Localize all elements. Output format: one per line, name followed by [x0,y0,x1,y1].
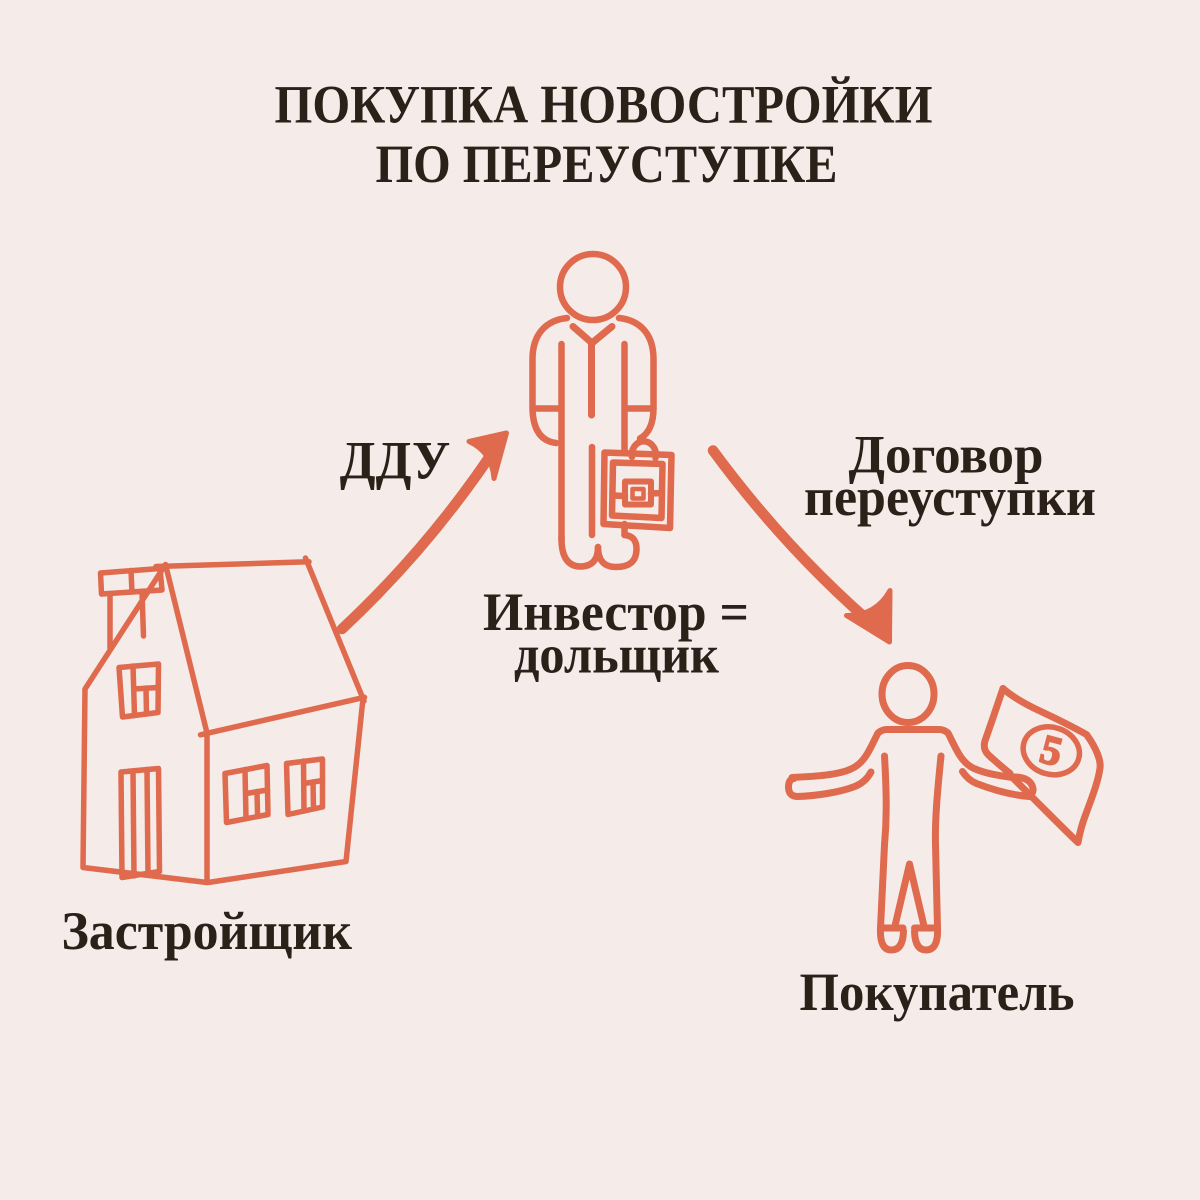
svg-text:переуступки: переуступки [804,467,1096,527]
svg-text:ПО ПЕРЕУСТУПКЕ: ПО ПЕРЕУСТУПКЕ [376,134,838,194]
svg-text:Покупатель: Покупатель [800,962,1075,1022]
svg-text:Застройщик: Застройщик [61,901,352,961]
svg-text:ПОКУПКА НОВОСТРОЙКИ: ПОКУПКА НОВОСТРОЙКИ [275,74,933,134]
svg-text:дольщик: дольщик [514,625,720,685]
svg-text:ДДУ: ДДУ [340,431,451,491]
